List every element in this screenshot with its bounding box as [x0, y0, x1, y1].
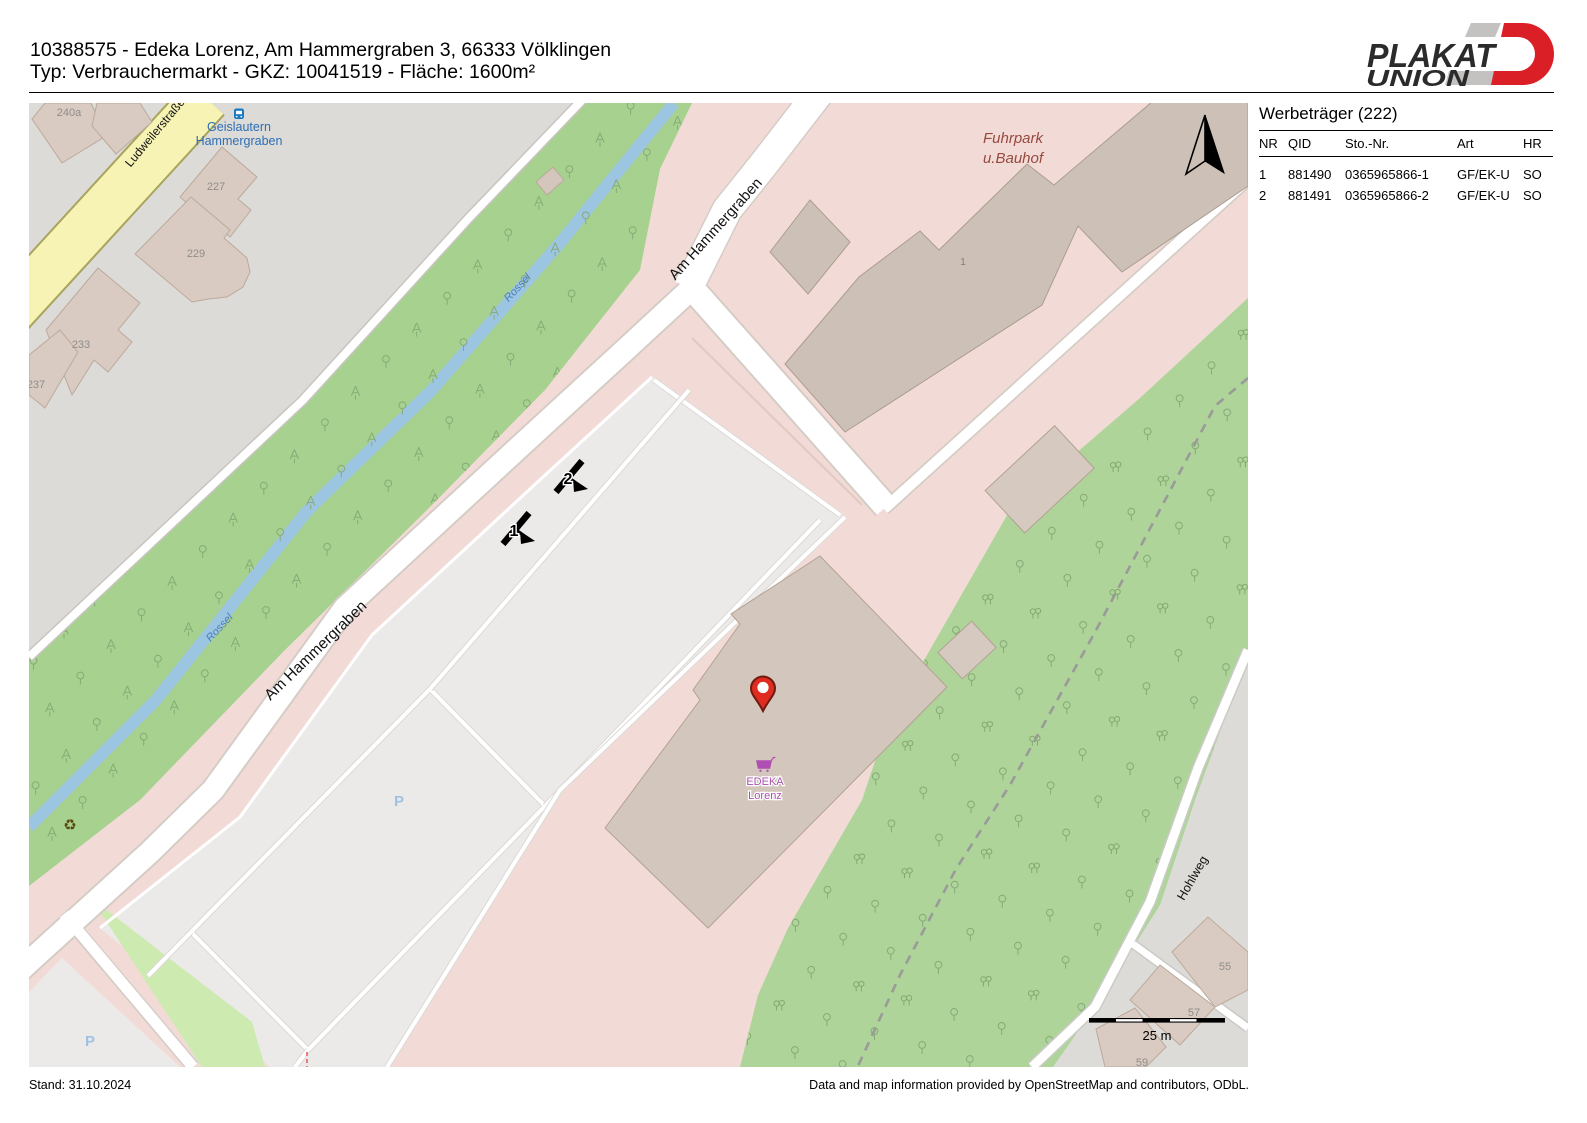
svg-text:EDEKA: EDEKA [746, 776, 784, 788]
svg-text:1: 1 [510, 523, 519, 540]
svg-text:227: 227 [207, 181, 225, 193]
svg-text:55: 55 [1219, 961, 1231, 973]
svg-text:240a: 240a [57, 107, 82, 119]
svg-text:59: 59 [1136, 1057, 1148, 1067]
svg-text:229: 229 [187, 248, 205, 260]
svg-text:Lorenz: Lorenz [748, 790, 782, 802]
svg-text:Fuhrpark: Fuhrpark [983, 130, 1045, 147]
svg-text:57: 57 [1188, 1007, 1200, 1019]
svg-text:Geislautern: Geislautern [207, 120, 271, 134]
svg-text:♻: ♻ [63, 817, 76, 834]
svg-text:237: 237 [29, 379, 45, 391]
svg-text:UNION: UNION [1366, 65, 1470, 90]
svg-text:P: P [394, 793, 404, 810]
svg-text:233: 233 [72, 339, 90, 351]
svg-text:1: 1 [960, 257, 966, 268]
svg-text:u.Bauhof: u.Bauhof [983, 150, 1045, 167]
svg-text:P: P [85, 1033, 95, 1050]
svg-text:25 m: 25 m [1143, 1028, 1172, 1043]
svg-text:2: 2 [564, 471, 573, 488]
svg-text:Hammergraben: Hammergraben [196, 134, 283, 148]
